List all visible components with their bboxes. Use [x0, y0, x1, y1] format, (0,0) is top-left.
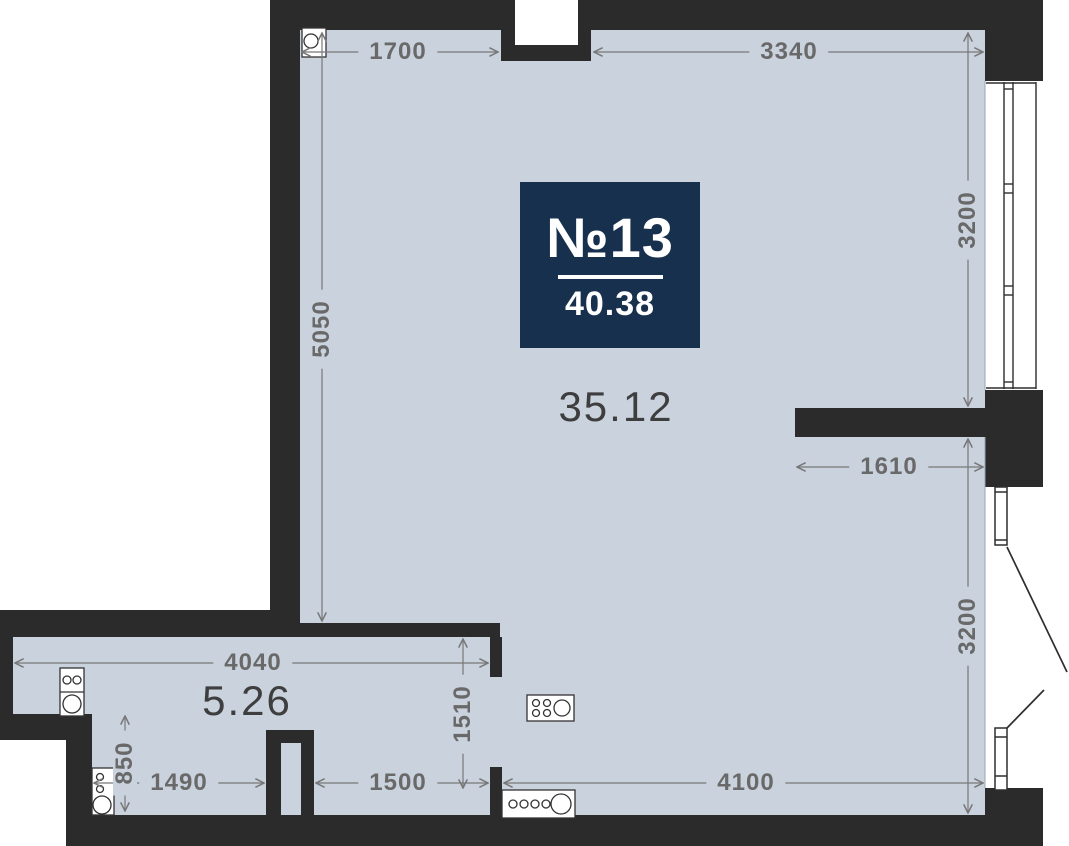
- dim-850: 850: [113, 730, 137, 795]
- plan-linework: [0, 0, 1069, 846]
- dim-3200-lower: 3200: [956, 586, 980, 665]
- kitchen-unit-upper-icon: [60, 668, 84, 716]
- balcony-door-upper-icon: [995, 487, 1067, 672]
- dim-1490: 1490: [139, 771, 218, 795]
- dim-4100: 4100: [706, 771, 785, 795]
- unit-total-area: 40.38: [565, 287, 655, 321]
- counter-sink-icon: [502, 790, 575, 818]
- badge-divider: [558, 275, 663, 279]
- dim-4040: 4040: [213, 651, 292, 675]
- window-icon: [986, 82, 1036, 389]
- balcony-door-lower-icon: [995, 690, 1044, 790]
- stove-icon: [527, 695, 574, 721]
- floor-plan: 1700 3340 3200 3200 5050 1610 4040 1510 …: [0, 0, 1069, 846]
- door-swing-line: [1007, 547, 1067, 672]
- dimension-lines: [15, 33, 983, 813]
- main-room-area-label: 35.12: [558, 386, 673, 428]
- unit-number: №13: [546, 210, 674, 266]
- dim-3200-upper: 3200: [956, 180, 980, 259]
- dim-5050: 5050: [310, 289, 334, 368]
- door-swing-line: [1007, 690, 1044, 728]
- dim-1500: 1500: [358, 771, 437, 795]
- dim-1610: 1610: [849, 455, 928, 479]
- dim-1510: 1510: [451, 674, 475, 753]
- unit-badge[interactable]: №13 40.38: [520, 182, 700, 348]
- dim-1700: 1700: [358, 40, 437, 64]
- dim-3340: 3340: [749, 40, 828, 64]
- kitchen-area-label: 5.26: [202, 680, 292, 722]
